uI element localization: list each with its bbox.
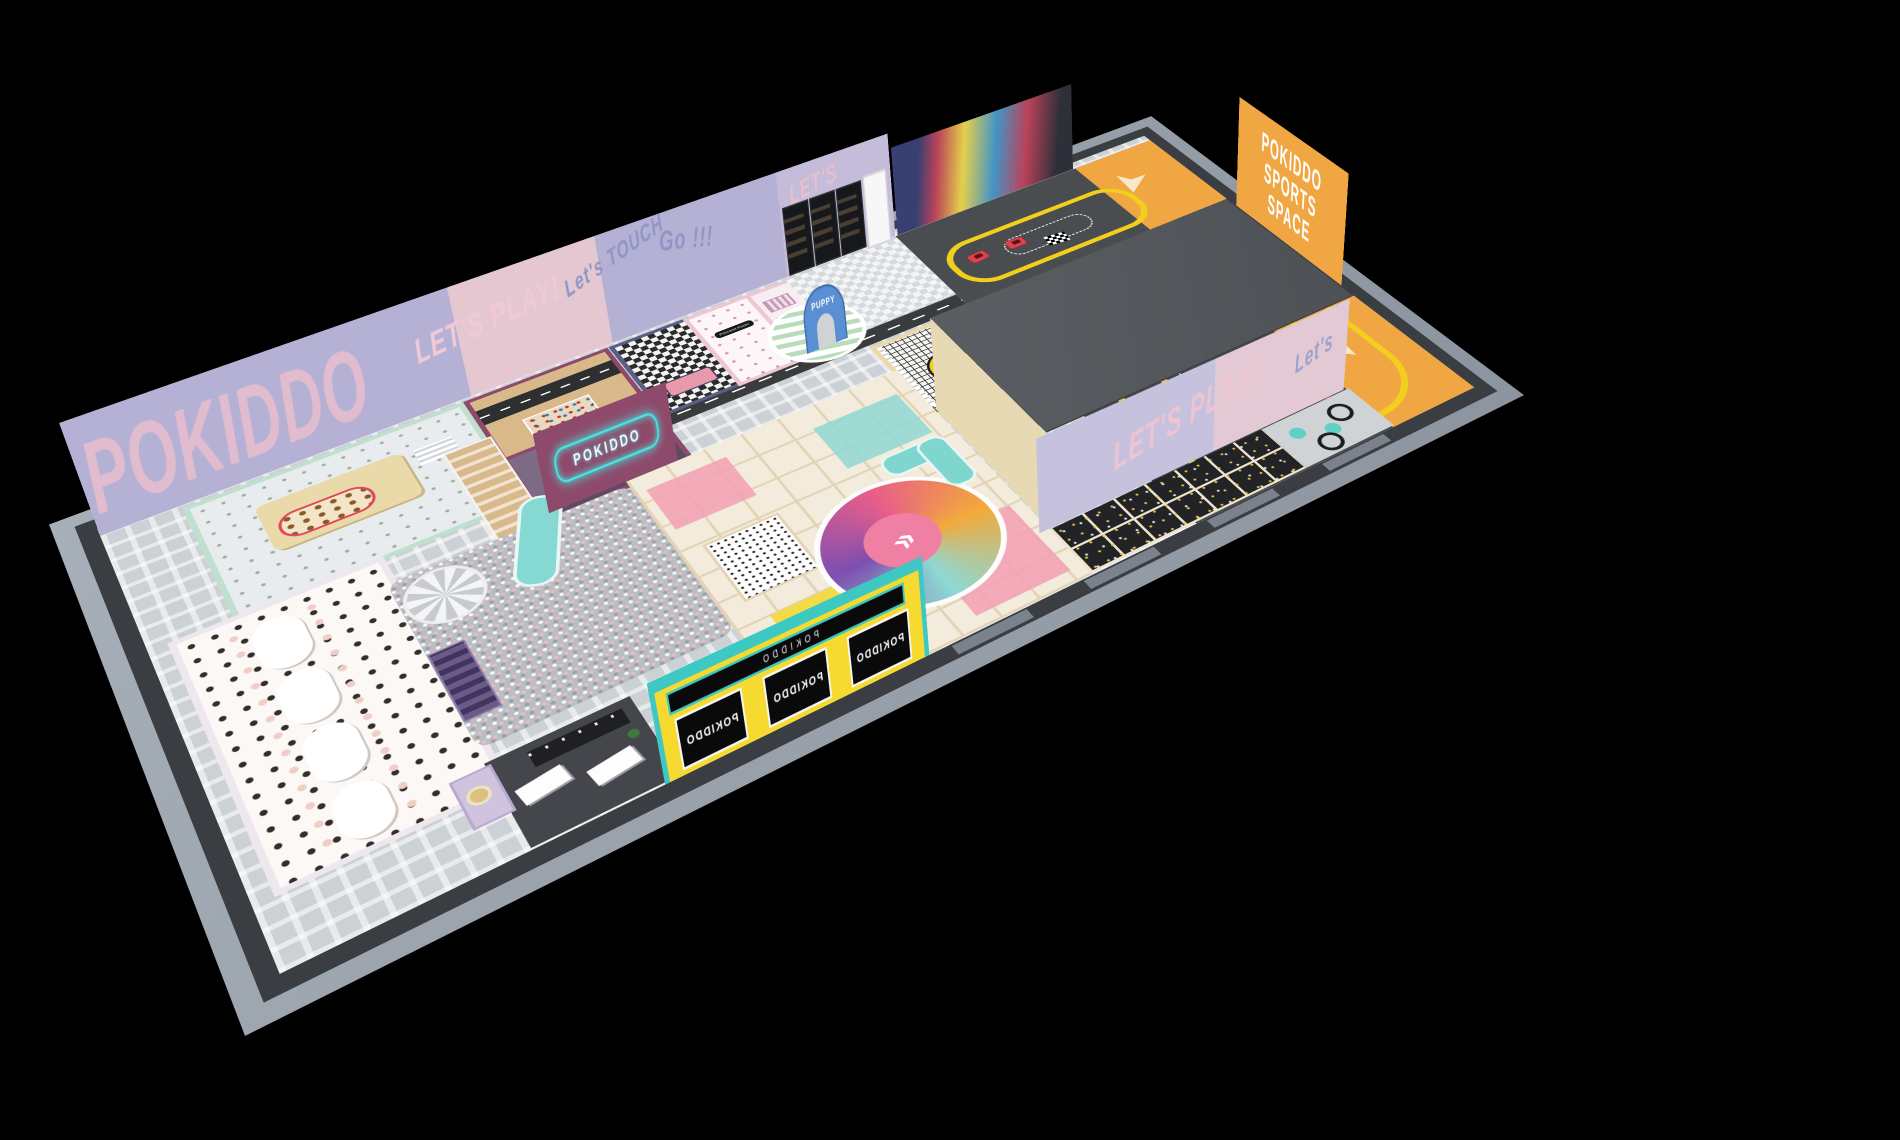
render-stage: ➤ ➤ ➤ (0, 0, 1900, 1140)
entrance-window-label: POKIDDO (685, 709, 740, 748)
white-door (862, 168, 891, 249)
dining-table (270, 660, 346, 731)
building-plan: ➤ ➤ ➤ (97, 136, 1474, 974)
restaurant-counter (661, 366, 720, 398)
dining-table (324, 772, 403, 848)
lets-touch-graffiti: Let's TOUCH (561, 209, 666, 303)
floor-arrow-icon: ➤ (1105, 171, 1161, 195)
neon-sign-label: POKIDDO (572, 425, 643, 470)
lets-play-graffiti: LET'S PLAY! (410, 267, 564, 372)
reception-desk (514, 764, 572, 806)
dining-table (296, 715, 375, 791)
puppy-arch-label: PUPPY (803, 290, 843, 316)
entrance-window-label: POKIDDO (855, 629, 905, 666)
vending-machine (836, 180, 867, 256)
go-graffiti: Go !!! (658, 219, 714, 258)
entrance-window-label: POKIDDO (772, 669, 824, 707)
princess-sign-label: Princess Room (718, 322, 750, 336)
